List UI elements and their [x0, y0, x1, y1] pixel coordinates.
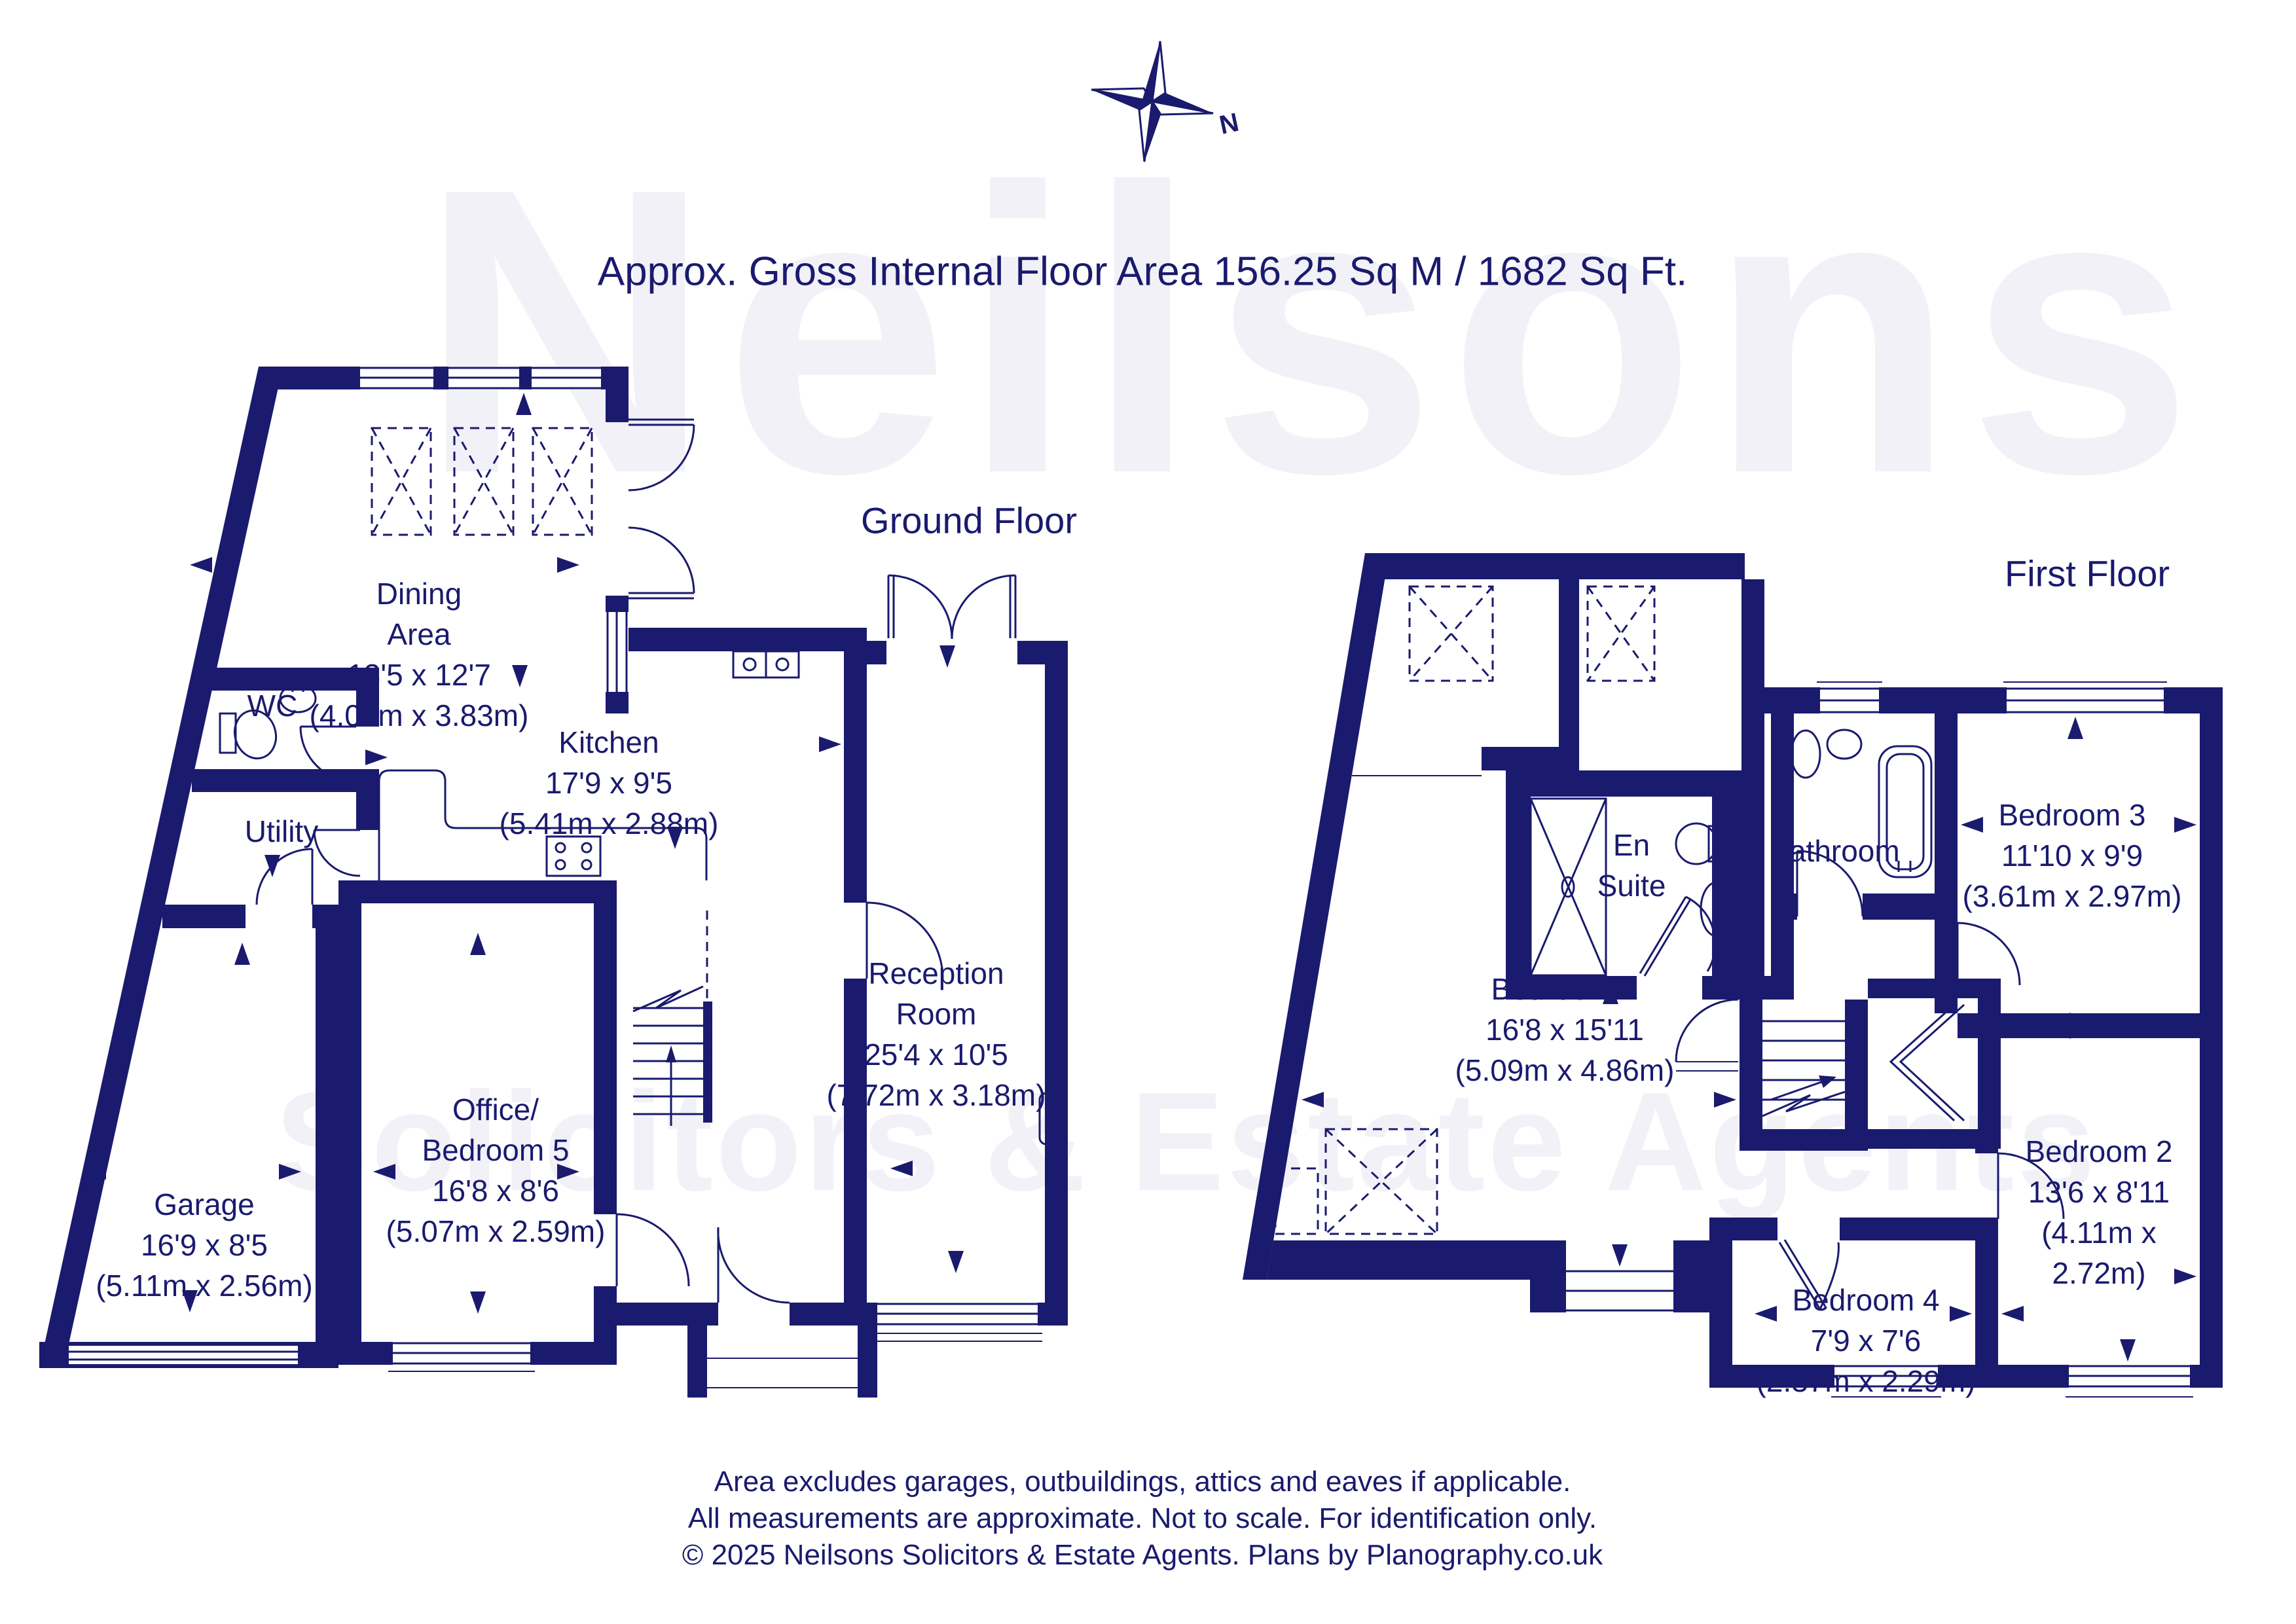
toilet-icon: [1676, 823, 1717, 864]
room-label-utility: Utility: [245, 770, 318, 892]
room-label-dining-area: Dining Area13'5 x 12'7(4.08m x 3.83m): [310, 533, 529, 776]
dining-skylights: [372, 428, 592, 535]
stairs-first: [1762, 1021, 1845, 1116]
room-label-bedroom3: Bedroom 311'10 x 9'9(3.61m x 2.97m): [1963, 754, 2182, 957]
compass-icon: N: [1067, 36, 1264, 180]
cistern-icon: [220, 713, 236, 753]
stairs-ground: [633, 911, 712, 1126]
room-label-garage: Garage16'9 x 8'5(5.11m x 2.56m): [96, 1144, 312, 1346]
footer-copyright: © 2025 Neilsons Solicitors & Estate Agen…: [682, 1537, 1603, 1574]
ground-floor-title: Ground Floor: [861, 499, 1077, 542]
basin-icon: [1827, 730, 1861, 759]
room-label-wc: WC: [247, 645, 298, 767]
basin-icon: [1791, 731, 1820, 778]
compass-star: N: [1091, 41, 1241, 162]
footer-disclaimer-2: All measurements are approximate. Not to…: [688, 1500, 1597, 1537]
compass-north-label: N: [1217, 108, 1241, 140]
floorplan-page: Neilsons Solicitors & Estate Agents N Ap…: [0, 0, 2296, 1624]
room-label-kitchen: Kitchen17'9 x 9'5(5.41m x 2.88m): [500, 681, 719, 884]
page-title: Approx. Gross Internal Floor Area 156.25…: [598, 249, 1688, 295]
room-label-bedroom4: Bedroom 47'9 x 7'6(2.37m x 2.29m): [1757, 1239, 1976, 1442]
room-label-office-bedroom5: Office/ Bedroom 516'8 x 8'6(5.07m x 2.59…: [386, 1049, 606, 1292]
room-label-ensuite: En Suite: [1597, 784, 1666, 947]
first-floor-title: First Floor: [2005, 552, 2170, 595]
room-label-bedroom2: Bedroom 213'6 x 8'11(4.11m x 2.72m): [2001, 1091, 2198, 1334]
footer-disclaimer-1: Area excludes garages, outbuildings, att…: [714, 1464, 1571, 1500]
room-label-bathroom: Bathroom: [1769, 790, 1899, 912]
room-label-reception-room: Reception Room25'4 x 10'5(7.72m x 3.18m): [827, 912, 1046, 1156]
room-label-bedroom1: Bedroom 116'8 x 15'11(5.09m x 4.86m): [1455, 928, 1675, 1131]
